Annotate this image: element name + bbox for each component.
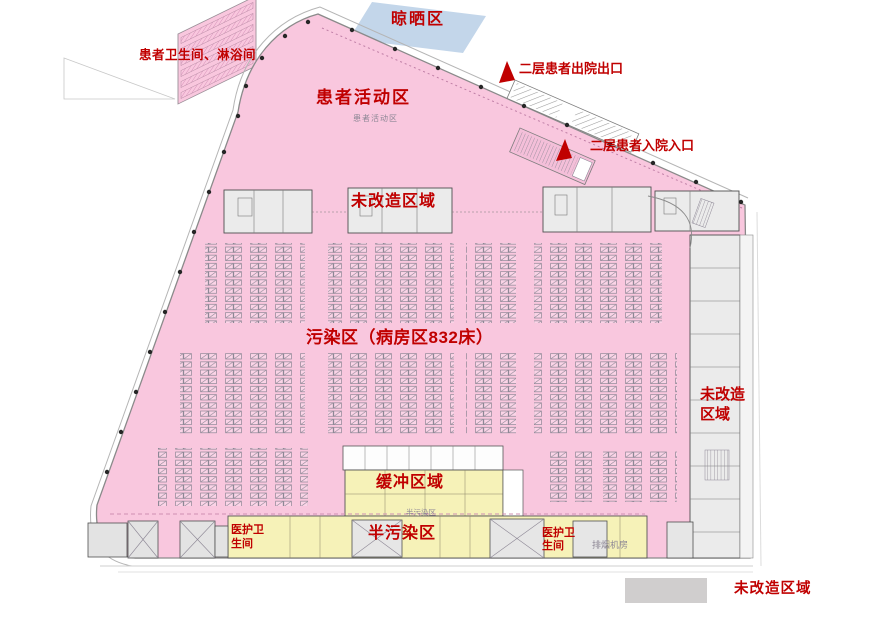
patient-activity-room-tag: 患者活动区 bbox=[353, 114, 398, 124]
hospital-floor-plan: 晾晒区 患者卫生间、淋浴间 患者活动区 患者活动区 二层患者出院出口 二层患者入… bbox=[0, 0, 886, 621]
floor-plan-drawing bbox=[0, 0, 886, 621]
patient-activity-label: 患者活动区 bbox=[316, 87, 411, 109]
patient-toilet-shower-label: 患者卫生间、淋浴间 bbox=[139, 47, 256, 63]
buffer-zone-label: 缓冲区域 bbox=[376, 473, 444, 494]
unrenovated-right-label: 未改造 区域 bbox=[700, 385, 745, 426]
staff-toilet-right-label: 医护卫 生间 bbox=[542, 527, 575, 552]
admission-entrance-label: 二层患者入院入口 bbox=[590, 138, 694, 155]
bottom-left-cores bbox=[88, 521, 228, 558]
staff-toilet-left-label: 医护卫 生间 bbox=[231, 524, 264, 552]
discharge-exit-label: 二层患者出院出口 bbox=[519, 61, 623, 78]
discharge-exit-arrow-icon bbox=[499, 61, 515, 83]
smoke-exhaust-room-label: 排烟机房 bbox=[592, 540, 628, 552]
drying-area-label: 晾晒区 bbox=[391, 10, 445, 31]
semi-contaminated-band bbox=[228, 516, 693, 558]
semi-contaminated-label: 半污染区 bbox=[368, 524, 436, 545]
semi-contaminated-room-tag: 半污染区 bbox=[406, 508, 436, 518]
contaminated-ward-label: 污染区（病房区832床） bbox=[306, 327, 493, 349]
unrenovated-top-label: 未改造区域 bbox=[351, 192, 436, 213]
legend-unrenovated-swatch bbox=[625, 578, 707, 603]
legend-unrenovated-label: 未改造区域 bbox=[734, 580, 812, 599]
sidewalk-line-right bbox=[757, 212, 761, 566]
site-marking bbox=[64, 58, 175, 99]
